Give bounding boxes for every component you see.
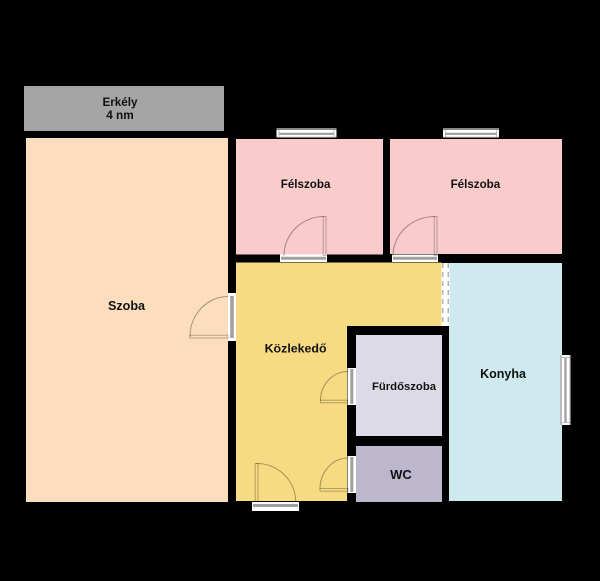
svg-text:4 nm: 4 nm bbox=[106, 108, 134, 122]
svg-text:Közlekedő: Közlekedő bbox=[265, 342, 327, 356]
svg-text:Félszoba: Félszoba bbox=[281, 178, 331, 191]
svg-text:Félszoba: Félszoba bbox=[451, 178, 501, 191]
svg-text:Fürdőszoba: Fürdőszoba bbox=[372, 381, 437, 393]
svg-text:Konyha: Konyha bbox=[480, 367, 527, 381]
svg-text:Szoba: Szoba bbox=[108, 299, 146, 313]
svg-text:WC: WC bbox=[390, 467, 412, 482]
